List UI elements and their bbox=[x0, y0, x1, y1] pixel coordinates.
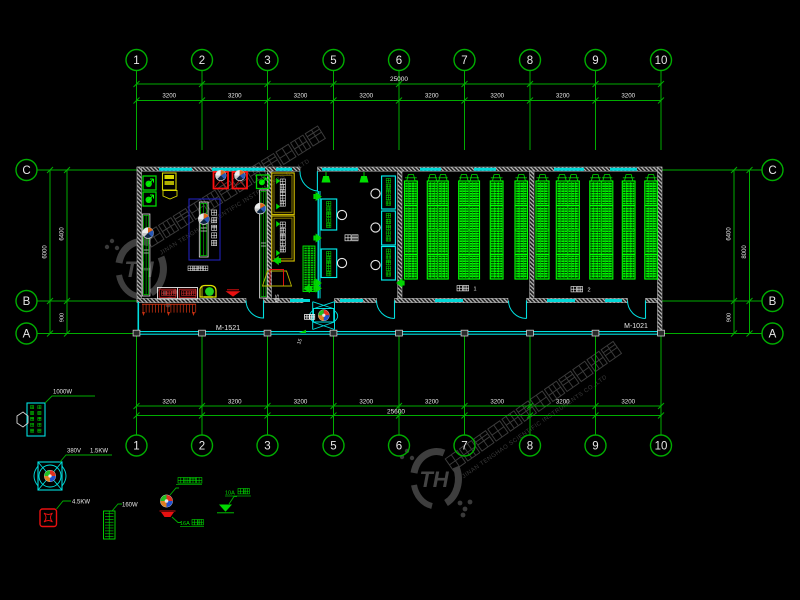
svg-text:10: 10 bbox=[655, 55, 668, 67]
svg-text:3200: 3200 bbox=[621, 93, 635, 100]
svg-text:C: C bbox=[768, 165, 776, 177]
svg-text:3200: 3200 bbox=[490, 399, 504, 406]
svg-text:25600: 25600 bbox=[387, 409, 405, 416]
svg-text:B: B bbox=[23, 296, 31, 308]
svg-text:900: 900 bbox=[60, 313, 66, 322]
svg-text:6400: 6400 bbox=[727, 227, 733, 241]
svg-text:2: 2 bbox=[199, 441, 205, 453]
svg-text:1000W: 1000W bbox=[53, 390, 72, 396]
svg-text:A: A bbox=[23, 329, 31, 341]
svg-text:5: 5 bbox=[330, 441, 336, 453]
svg-text:3200: 3200 bbox=[359, 93, 373, 100]
svg-text:6400: 6400 bbox=[60, 227, 66, 241]
svg-text:1: 1 bbox=[133, 441, 139, 453]
svg-text:MS: MS bbox=[275, 294, 281, 303]
svg-text:1.5KW: 1.5KW bbox=[90, 449, 108, 455]
svg-text:B: B bbox=[769, 296, 777, 308]
svg-text:8000: 8000 bbox=[742, 245, 748, 259]
svg-text:1: 1 bbox=[133, 55, 139, 67]
svg-text:3200: 3200 bbox=[228, 399, 242, 406]
svg-text:3: 3 bbox=[264, 55, 270, 67]
svg-text:3200: 3200 bbox=[556, 399, 570, 406]
svg-text:4.5KW: 4.5KW bbox=[72, 500, 90, 506]
svg-text:6000: 6000 bbox=[43, 245, 49, 259]
svg-text:8: 8 bbox=[527, 55, 533, 67]
svg-text:3200: 3200 bbox=[228, 93, 242, 100]
svg-text:M-1021: M-1021 bbox=[624, 323, 648, 330]
svg-text:3200: 3200 bbox=[162, 399, 176, 406]
svg-text:6: 6 bbox=[396, 441, 402, 453]
svg-text:10: 10 bbox=[655, 441, 668, 453]
svg-text:25000: 25000 bbox=[390, 76, 408, 83]
svg-text:A: A bbox=[769, 329, 777, 341]
svg-text:3200: 3200 bbox=[425, 93, 439, 100]
svg-text:9: 9 bbox=[592, 441, 598, 453]
svg-text:6: 6 bbox=[396, 55, 402, 67]
svg-text:3200: 3200 bbox=[162, 93, 176, 100]
svg-text:1: 1 bbox=[473, 287, 476, 293]
svg-text:9: 9 bbox=[592, 55, 598, 67]
svg-text:7: 7 bbox=[461, 55, 467, 67]
svg-text:3200: 3200 bbox=[490, 93, 504, 100]
svg-text:3200: 3200 bbox=[621, 399, 635, 406]
svg-text:2: 2 bbox=[587, 288, 590, 294]
svg-text:3200: 3200 bbox=[556, 93, 570, 100]
svg-text:3200: 3200 bbox=[294, 93, 308, 100]
svg-text:2: 2 bbox=[199, 55, 205, 67]
svg-text:C: C bbox=[22, 165, 30, 177]
svg-text:3: 3 bbox=[264, 441, 270, 453]
svg-text:3200: 3200 bbox=[294, 399, 308, 406]
svg-text:M-1521: M-1521 bbox=[216, 323, 240, 332]
svg-text:160W: 160W bbox=[122, 503, 138, 509]
svg-text:TH: TH bbox=[419, 467, 449, 492]
svg-text:8: 8 bbox=[527, 441, 533, 453]
svg-text:380V: 380V bbox=[67, 449, 81, 455]
svg-text:5: 5 bbox=[330, 55, 336, 67]
svg-text:900: 900 bbox=[727, 313, 733, 322]
svg-text:7: 7 bbox=[461, 441, 467, 453]
svg-text:3200: 3200 bbox=[359, 399, 373, 406]
svg-text:3200: 3200 bbox=[425, 399, 439, 406]
